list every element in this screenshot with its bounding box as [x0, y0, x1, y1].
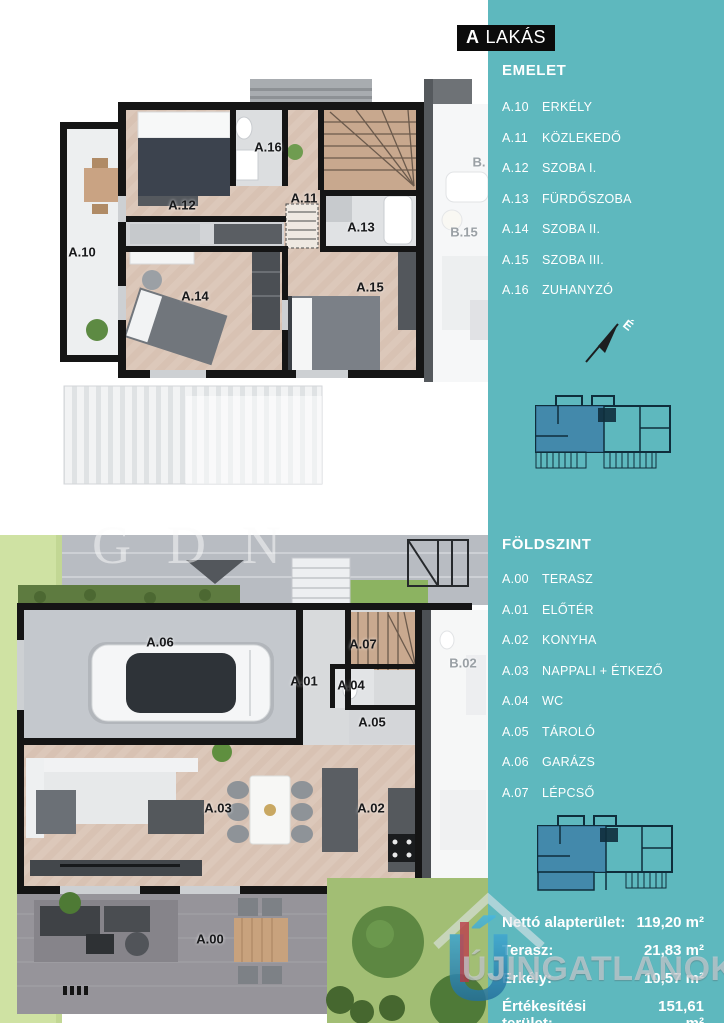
upper-floorplan-rendering	[0, 78, 488, 500]
stat-label: Terasz:	[502, 942, 553, 959]
room-label-a12: A.12	[168, 198, 195, 213]
room-name: FÜRDŐSZOBA	[542, 192, 712, 206]
north-compass-icon: É	[578, 310, 648, 370]
room-label-a06: A.06	[146, 635, 173, 650]
stat-value: 119,20 m²	[636, 914, 704, 931]
list-item: A.13 FÜRDŐSZOBA	[502, 184, 712, 215]
mini-overview-ground	[530, 812, 680, 904]
room-code: A.04	[502, 694, 542, 708]
list-item: A.01 ELŐTÉR	[502, 595, 712, 626]
room-label-b-partial: B.	[473, 155, 486, 170]
room-label-a07: A.07	[349, 637, 376, 652]
room-label-a02: A.02	[357, 801, 384, 816]
list-item: A.15 SZOBA III.	[502, 245, 712, 276]
room-label-a01: A.01	[290, 674, 317, 689]
stat-value: 151,61 m²	[637, 998, 704, 1023]
list-item: A.07 LÉPCSŐ	[502, 778, 712, 809]
room-name: TERASZ	[542, 572, 712, 586]
stat-sales-area: Értékesítési terület: 151,61 m²	[502, 998, 704, 1020]
area-stats: Nettó alapterület: 119,20 m² Terasz: 21,…	[502, 914, 704, 1020]
room-code: A.12	[502, 161, 542, 175]
room-name: KONYHA	[542, 633, 712, 647]
list-item: A.06 GARÁZS	[502, 747, 712, 778]
room-name: ELŐTÉR	[542, 603, 712, 617]
room-code: A.05	[502, 725, 542, 739]
room-label-a00: A.00	[196, 932, 223, 947]
room-code: A.16	[502, 283, 542, 297]
room-code: A.13	[502, 192, 542, 206]
stat-balcony: Erkély: 10,57 m²	[502, 970, 704, 992]
list-item: A.12 SZOBA I.	[502, 153, 712, 184]
stat-label: Erkély:	[502, 970, 552, 987]
info-sidebar: EMELET A.10 ERKÉLY A.11 KÖZLEKEDŐ A.12 S…	[488, 0, 724, 1023]
stat-net-area: Nettó alapterület: 119,20 m²	[502, 914, 704, 936]
ground-room-list: A.00 TERASZ A.01 ELŐTÉR A.02 KONYHA A.03…	[502, 564, 712, 808]
room-code: A.03	[502, 664, 542, 678]
list-item: A.04 WC	[502, 686, 712, 717]
room-label-a10: A.10	[68, 245, 95, 260]
room-name: SZOBA II.	[542, 222, 712, 236]
room-code: A.01	[502, 603, 542, 617]
list-item: A.02 KONYHA	[502, 625, 712, 656]
list-item: A.16 ZUHANYZÓ	[502, 275, 712, 306]
upper-room-list: A.10 ERKÉLY A.11 KÖZLEKEDŐ A.12 SZOBA I.…	[502, 92, 712, 306]
room-name: SZOBA I.	[542, 161, 712, 175]
room-name: GARÁZS	[542, 755, 712, 769]
room-code: A.00	[502, 572, 542, 586]
list-item: A.10 ERKÉLY	[502, 92, 712, 123]
list-item: A.11 KÖZLEKEDŐ	[502, 123, 712, 154]
room-name: WC	[542, 694, 712, 708]
unit-letter: A	[466, 27, 480, 47]
room-label-a14: A.14	[181, 289, 208, 304]
stat-label: Nettó alapterület:	[502, 914, 625, 931]
mini-overview-upper	[528, 392, 678, 484]
compass-north-label: É	[620, 317, 636, 334]
room-label-a03: A.03	[204, 801, 231, 816]
room-label-a13: A.13	[347, 220, 374, 235]
room-code: A.14	[502, 222, 542, 236]
room-name: NAPPALI + ÉTKEZŐ	[542, 664, 712, 678]
room-label-b02: B.02	[449, 656, 476, 671]
room-label-a15: A.15	[356, 280, 383, 295]
list-item: A.03 NAPPALI + ÉTKEZŐ	[502, 656, 712, 687]
list-item: A.14 SZOBA II.	[502, 214, 712, 245]
room-code: A.10	[502, 100, 542, 114]
stat-label: Értékesítési terület:	[502, 998, 637, 1023]
unit-title: ALAKÁS	[457, 25, 555, 51]
room-label-b15: B.15	[450, 225, 477, 240]
room-code: A.02	[502, 633, 542, 647]
room-name: SZOBA III.	[542, 253, 712, 267]
room-name: KÖZLEKEDŐ	[542, 131, 712, 145]
ground-floorplan-rendering	[0, 535, 488, 1023]
unit-word: LAKÁS	[486, 27, 547, 47]
list-item: A.05 TÁROLÓ	[502, 717, 712, 748]
stat-value: 10,57 m²	[644, 970, 704, 987]
room-code: A.15	[502, 253, 542, 267]
room-label-a05: A.05	[358, 715, 385, 730]
room-label-a16: A.16	[254, 140, 281, 155]
stat-terrace: Terasz: 21,83 m²	[502, 942, 704, 964]
stat-value: 21,83 m²	[644, 942, 704, 959]
room-label-a04: A.04	[337, 678, 364, 693]
room-label-a11: A.11	[291, 191, 318, 206]
room-code: A.11	[502, 131, 542, 145]
room-name: TÁROLÓ	[542, 725, 712, 739]
list-item: A.00 TERASZ	[502, 564, 712, 595]
room-name: ERKÉLY	[542, 100, 712, 114]
room-name: LÉPCSŐ	[542, 786, 712, 800]
room-code: A.06	[502, 755, 542, 769]
floorplan-sheet: GDN A.10 A.12 A.16 A.11 A.13 A.14 A.15 B…	[0, 0, 724, 1023]
room-name: ZUHANYZÓ	[542, 283, 712, 297]
room-code: A.07	[502, 786, 542, 800]
ground-floor-title: FÖLDSZINT	[502, 536, 592, 553]
upper-floor-title: EMELET	[502, 62, 566, 79]
